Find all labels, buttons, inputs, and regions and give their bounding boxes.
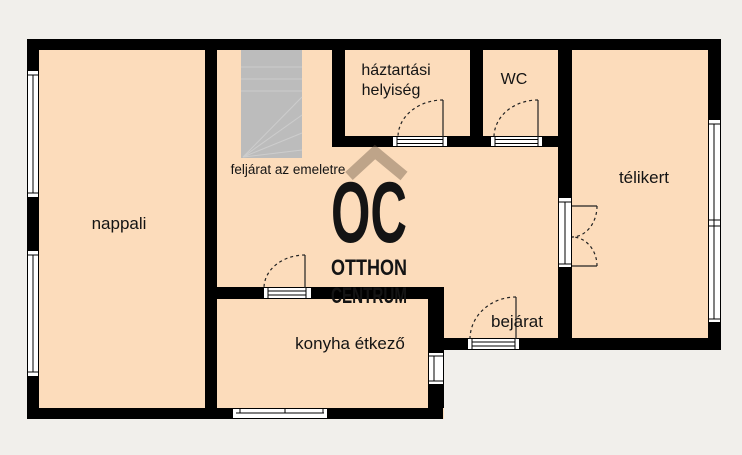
- door-threshold-bejarat: [468, 339, 520, 350]
- label-stairs-note: feljárat az emeletre: [231, 162, 346, 177]
- window-kitchen-right: [429, 353, 444, 385]
- staircase: [241, 49, 302, 158]
- label-nappali: nappali: [92, 214, 147, 233]
- window-kitchen-bottom: [233, 409, 328, 419]
- label-bejarat: bejárat: [491, 312, 543, 331]
- watermark-monogram: OC: [331, 165, 407, 261]
- exterior-notch: [444, 350, 742, 455]
- label-haztartasi-line1: háztartási: [361, 62, 430, 79]
- label-telikert: télikert: [619, 168, 669, 187]
- double-door-frame: [559, 198, 572, 268]
- window-left-lower: [28, 251, 39, 377]
- door-threshold-konyha: [264, 288, 312, 299]
- watermark-line2: CENTRUM: [331, 283, 407, 308]
- label-wc: WC: [501, 71, 528, 88]
- label-haztartasi-line2: helyiség: [362, 82, 421, 99]
- label-konyha: konyha étkező: [295, 334, 405, 353]
- floor-plan-canvas: OC OTTHON CENTRUM nappali feljárat az em…: [0, 0, 742, 455]
- window-wintergarden-right: [709, 120, 721, 323]
- door-threshold-wc: [491, 137, 543, 147]
- door-threshold-haztartasi: [393, 137, 448, 147]
- watermark-line1: OTTHON: [331, 255, 407, 280]
- floor-plan: OC OTTHON CENTRUM nappali feljárat az em…: [0, 0, 742, 455]
- window-left-upper: [28, 71, 39, 198]
